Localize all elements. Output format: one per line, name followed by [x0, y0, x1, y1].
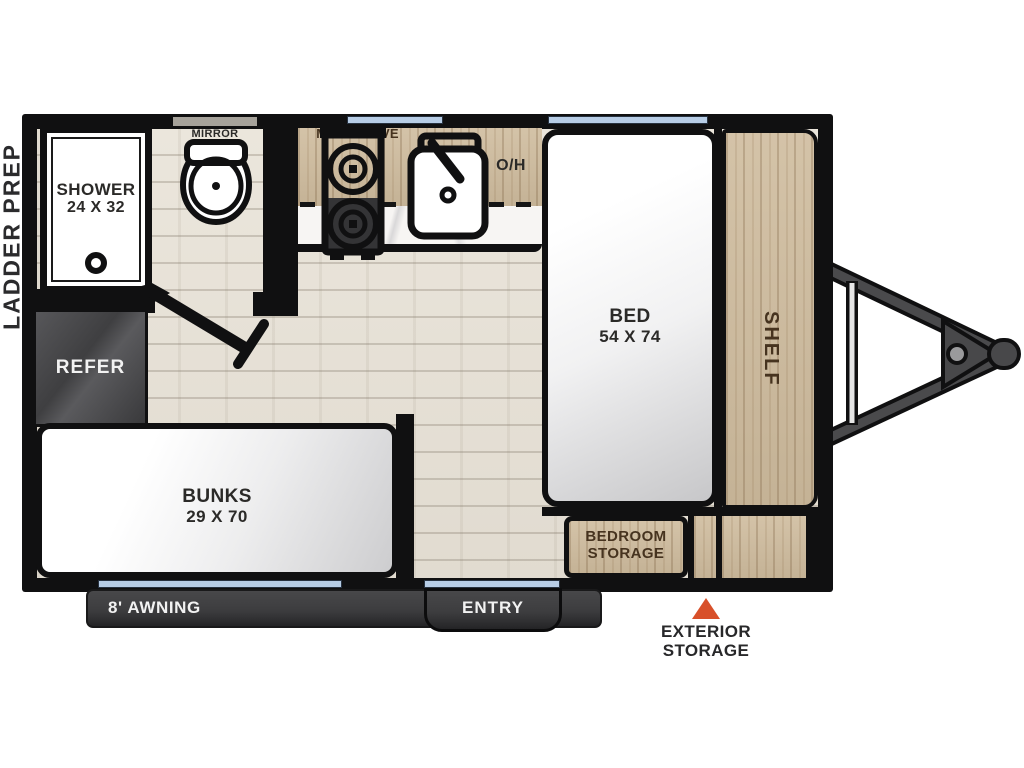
- bathroom-door-icon: [138, 283, 278, 375]
- storage-compartment-right: [722, 516, 806, 578]
- exterior-storage-line2: STORAGE: [626, 642, 786, 661]
- bunks-label-line2: 29 X 70: [36, 508, 398, 526]
- wall-bed-shelf-divider: [714, 129, 722, 507]
- sink-icon: [404, 132, 492, 244]
- awning-label: 8' AWNING: [108, 599, 228, 617]
- bunks-label-line1: BUNKS: [36, 487, 398, 508]
- entry-door-window: [424, 580, 560, 588]
- bed-label-line2: 54 X 74: [542, 328, 718, 346]
- toilet-icon: [176, 139, 256, 227]
- bedroom-window: [548, 116, 708, 124]
- storage-right-fill: [806, 516, 818, 578]
- bedroom-storage-line2: STORAGE: [564, 545, 688, 562]
- shower-label-line2: 24 X 32: [40, 199, 152, 216]
- storage-compartment-middle: [694, 516, 716, 578]
- bed-label: BED 54 X 74: [542, 307, 718, 346]
- bedroom-storage-label: BEDROOM STORAGE: [564, 528, 688, 563]
- wall-bed-foot: [542, 507, 818, 516]
- shower-label: SHOWER 24 X 32: [40, 181, 152, 217]
- bedroom-storage-line1: BEDROOM: [564, 528, 688, 545]
- shower-drain-icon: [85, 252, 107, 274]
- overhead-label: O/H: [486, 157, 536, 174]
- bunks-window: [98, 580, 342, 588]
- exterior-storage-label: EXTERIOR STORAGE: [626, 623, 786, 660]
- shower-label-line1: SHOWER: [40, 181, 152, 199]
- entry-label: ENTRY: [424, 599, 562, 617]
- stove-icon: [318, 126, 388, 262]
- exterior-storage-line1: EXTERIOR: [626, 623, 786, 642]
- ladder-prep-label: LADDER PREP: [0, 140, 24, 332]
- mirror: [170, 114, 260, 129]
- kitchen-window: [347, 116, 443, 124]
- shelf-label: SHELF: [759, 309, 781, 389]
- hitch-icon: [833, 255, 1024, 450]
- floorplan-canvas: SHOWER 24 X 32 MIRROR MICROWAVE O/H: [0, 0, 1024, 768]
- bed-label-line1: BED: [542, 307, 718, 328]
- storage-divider-left: [688, 516, 694, 578]
- refrigerator-label: REFER: [33, 358, 148, 379]
- bunks-label: BUNKS 29 X 70: [36, 487, 398, 526]
- exterior-storage-marker-icon: [692, 598, 720, 619]
- storage-divider-right: [716, 516, 722, 578]
- wall-bunks-right: [396, 414, 414, 582]
